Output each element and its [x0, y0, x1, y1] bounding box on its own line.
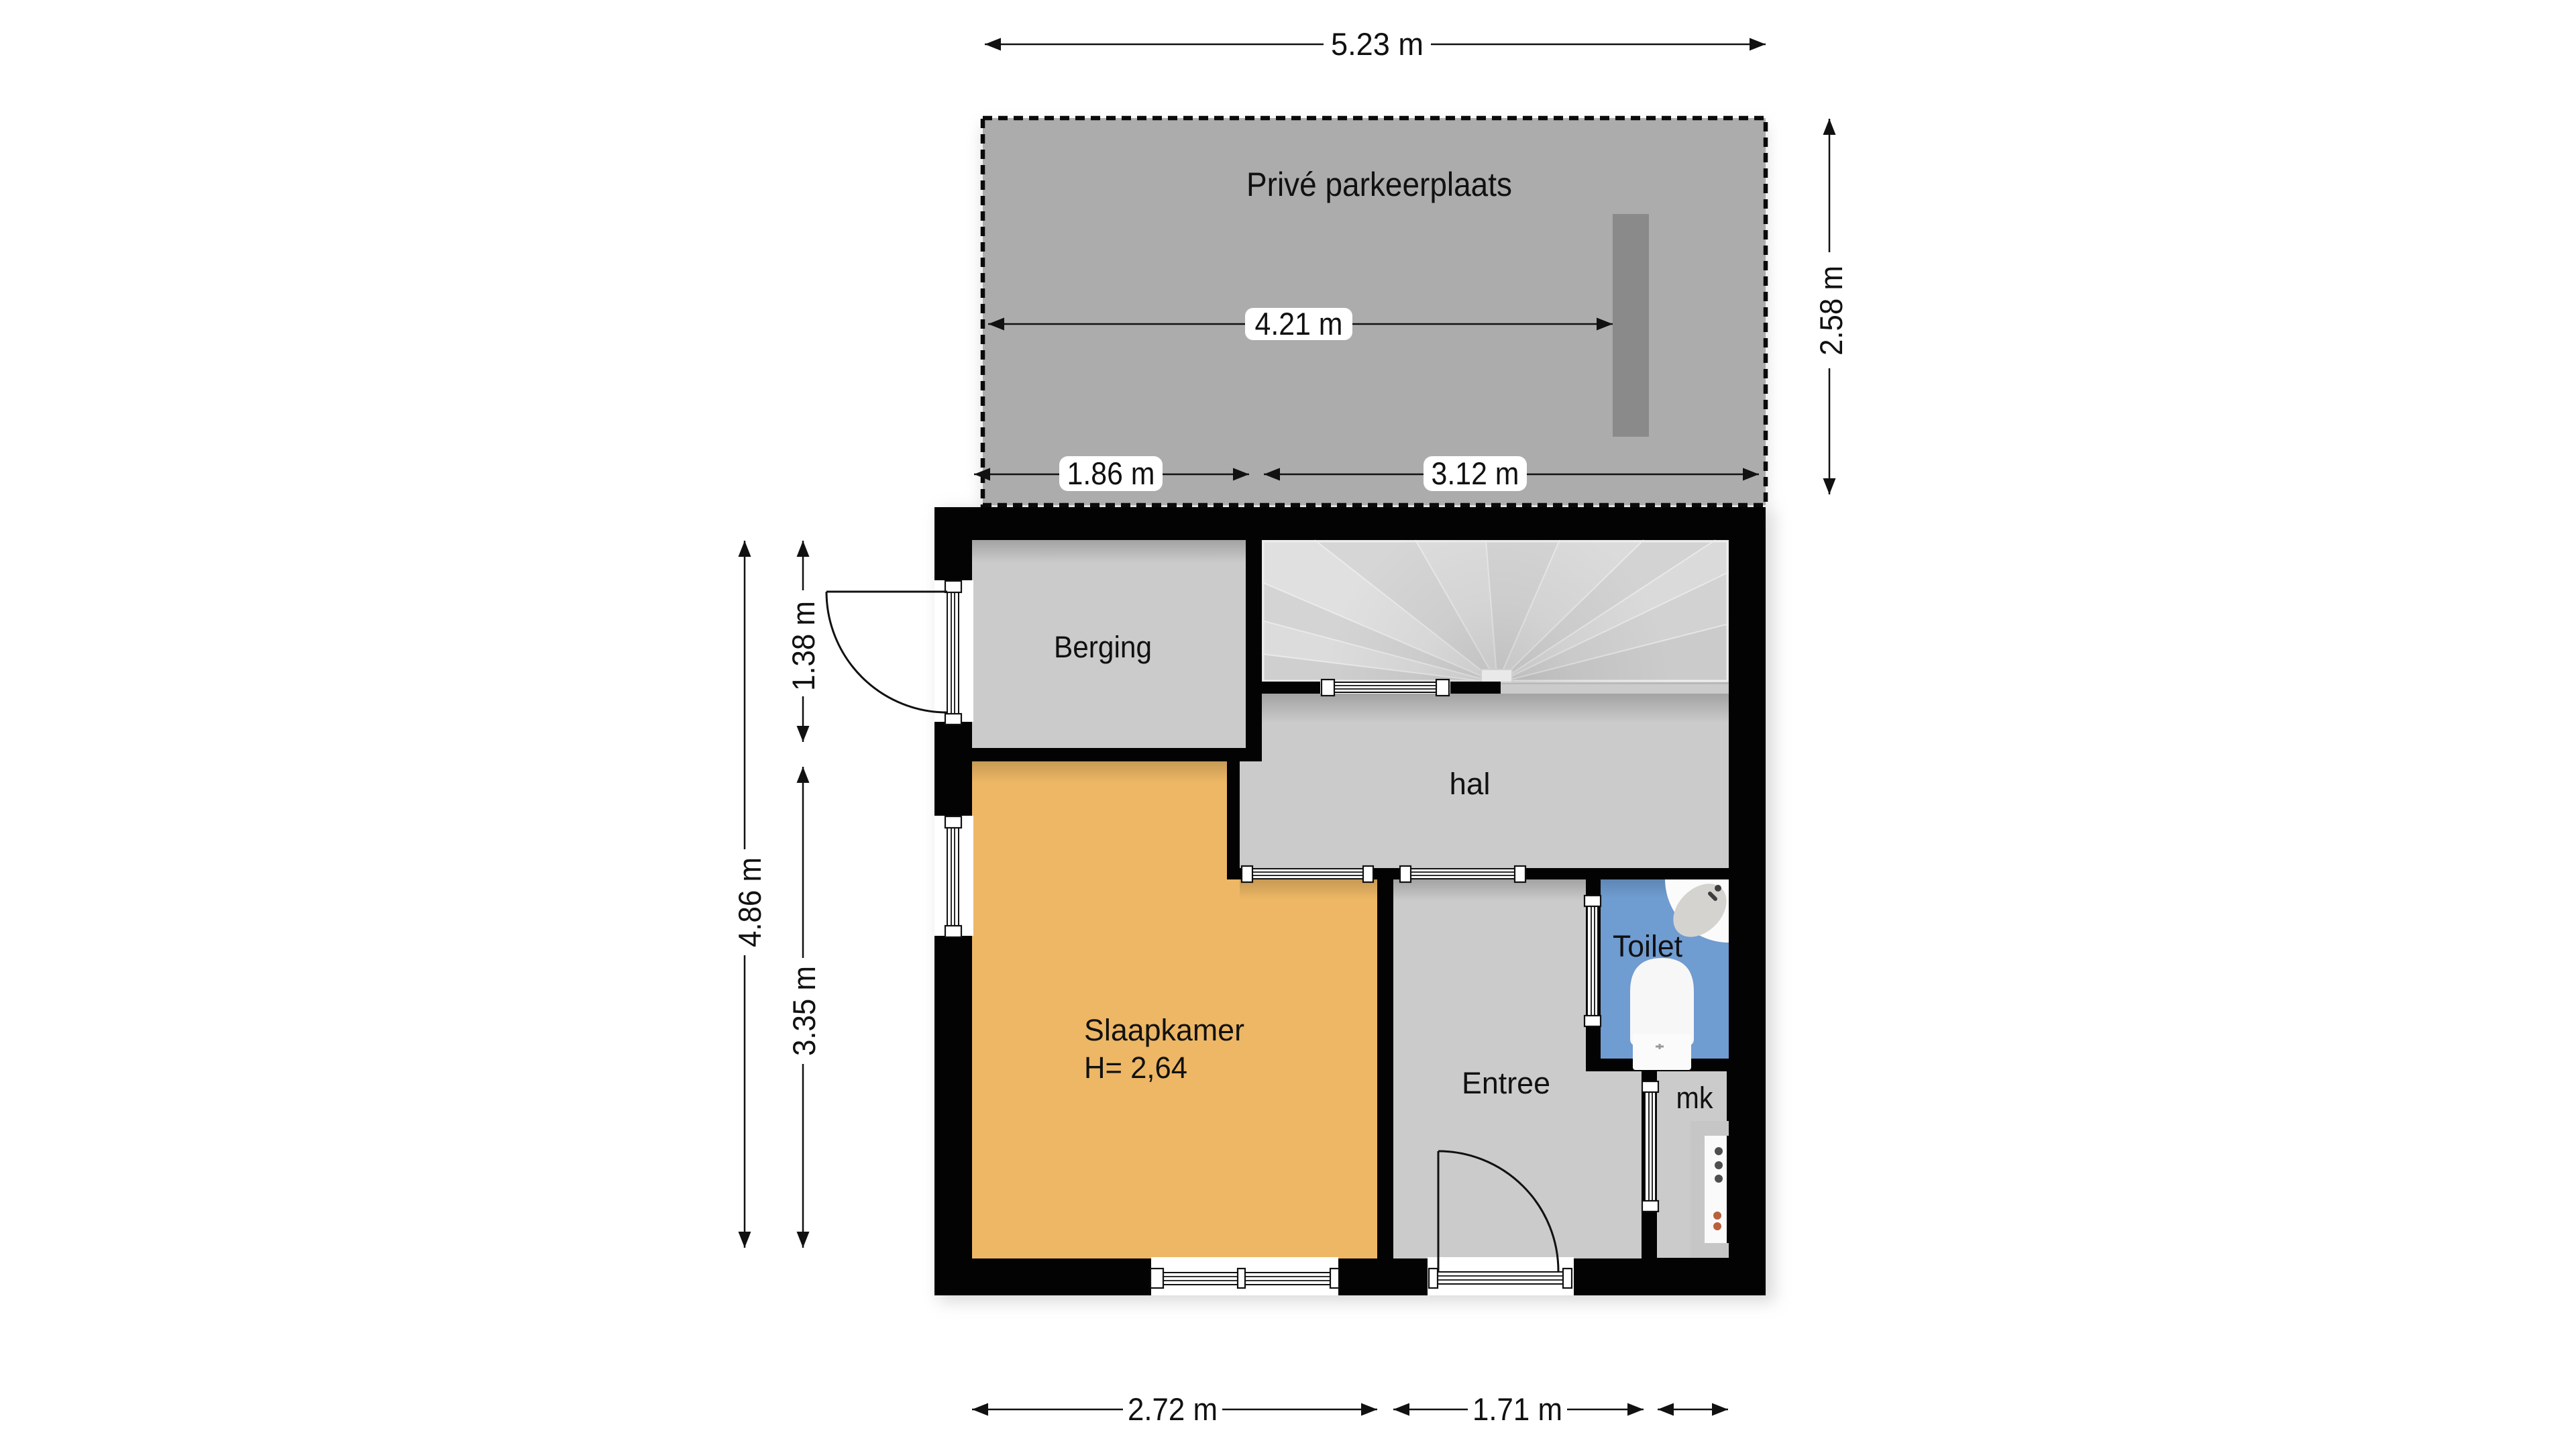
svg-text:3.12 m: 3.12 m	[1432, 455, 1519, 491]
svg-text:Privé parkeerplaats: Privé parkeerplaats	[1246, 166, 1512, 203]
svg-text:1.86 m: 1.86 m	[1067, 455, 1155, 491]
svg-text:Toilet: Toilet	[1613, 929, 1682, 963]
svg-text:Berging: Berging	[1054, 630, 1152, 664]
svg-text:hal: hal	[1450, 767, 1491, 801]
svg-text:1.38 m: 1.38 m	[786, 601, 821, 691]
svg-text:1.71 m: 1.71 m	[1472, 1391, 1562, 1427]
svg-text:2.72 m: 2.72 m	[1128, 1391, 1218, 1427]
svg-text:Slaapkamer: Slaapkamer	[1084, 1013, 1244, 1047]
svg-text:4.86 m: 4.86 m	[732, 857, 767, 947]
svg-text:mk: mk	[1676, 1081, 1713, 1115]
svg-text:4.21 m: 4.21 m	[1255, 306, 1343, 341]
svg-text:3.35 m: 3.35 m	[786, 966, 822, 1056]
svg-text:Entree: Entree	[1462, 1066, 1550, 1100]
svg-text:5.23 m: 5.23 m	[1331, 26, 1424, 62]
svg-text:2.58 m: 2.58 m	[1813, 266, 1849, 356]
svg-text:H= 2,64: H= 2,64	[1084, 1051, 1187, 1085]
